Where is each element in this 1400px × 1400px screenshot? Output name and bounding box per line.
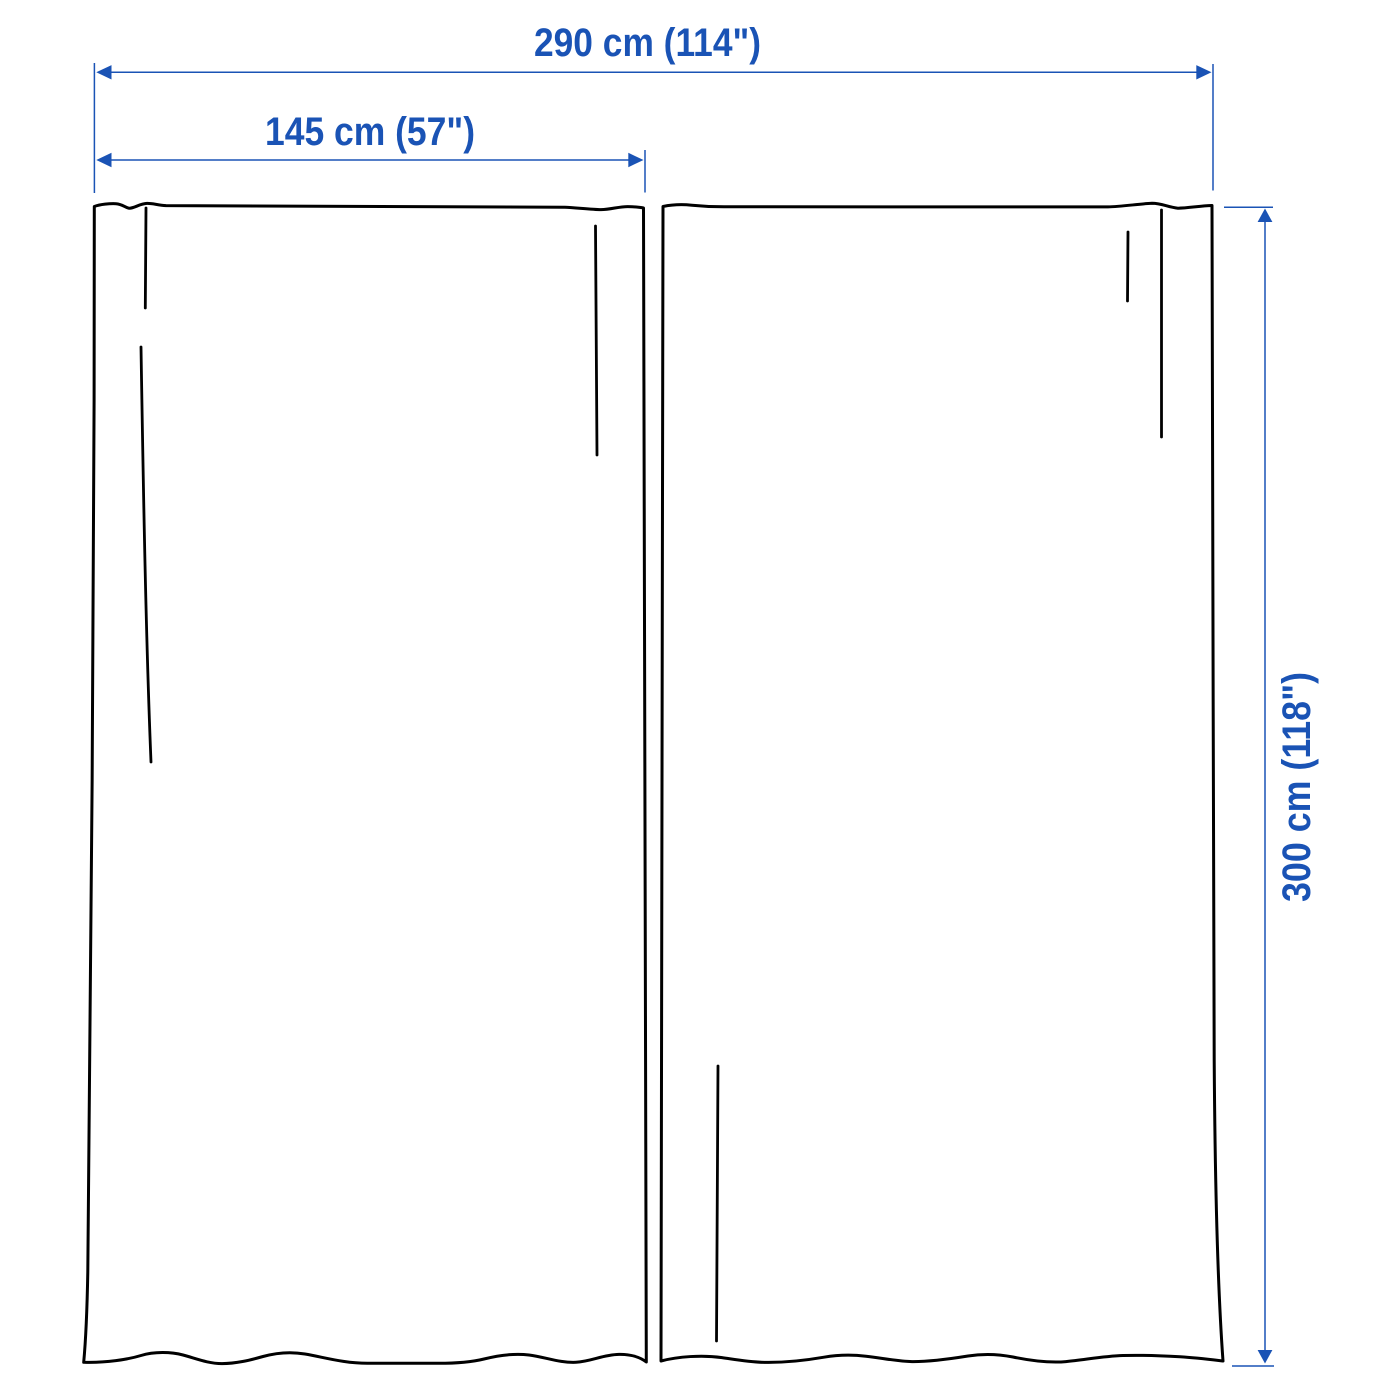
svg-text:300 cm (118"): 300 cm (118")	[1275, 672, 1319, 902]
svg-text:145 cm (57"): 145 cm (57")	[265, 110, 475, 154]
svg-text:290 cm (114"): 290 cm (114")	[534, 21, 761, 65]
